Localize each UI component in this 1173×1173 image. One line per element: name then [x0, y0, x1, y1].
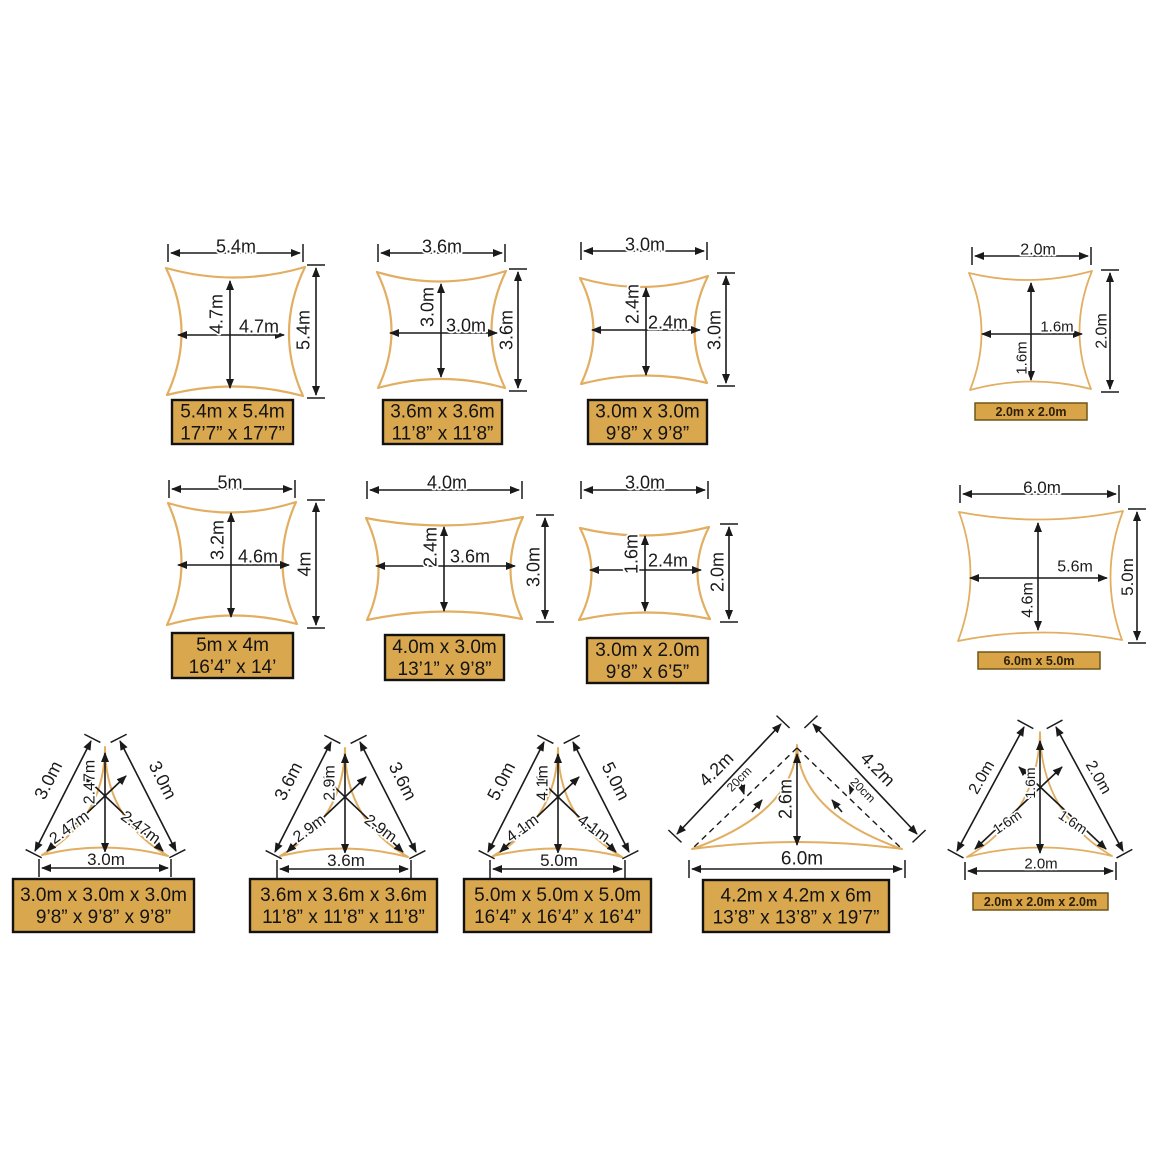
diagram-canvas: 5.4m5.4m4.7m4.7m5.4m x 5.4m17’7” x 17’7”… [0, 0, 1173, 1173]
size-label-text: 17’7” x 17’7” [180, 424, 285, 445]
dimension-line [832, 800, 842, 812]
dimension-label: 4.7m [239, 316, 279, 336]
dimension-label: 5.4m [216, 236, 256, 256]
dimension-label: 2.4m [420, 527, 440, 567]
figure-triangle-4.2x4.2x6.0: 4.2m4.2m20cm20cm6.0m2.6m4.2m x 4.2m x 6m… [668, 716, 925, 932]
dimension-label: 2.9m [322, 765, 339, 801]
figure-triangle-3.6x3.6x3.6: 3.6m3.6m3.6m2.9m2.9m2.9m3.6m x 3.6m x 3.… [250, 735, 437, 932]
figure-square-5.4x5.4: 5.4m5.4m4.7m4.7m5.4m x 5.4m17’7” x 17’7” [166, 236, 325, 444]
dimension-label: 5.4m [293, 310, 313, 350]
dimension-tick [266, 851, 282, 859]
dimension-label: 3.0m [704, 310, 724, 350]
dimension-label: 1.6m [621, 534, 641, 574]
dimension-label: 4m [294, 551, 314, 576]
size-label-text: 16’4” x 16’4” x 16’4” [474, 907, 641, 928]
dimension-label: 2.0m [966, 758, 999, 797]
dimension-label: 2.0m [1082, 758, 1115, 797]
size-label-text: 4.0m x 3.0m [392, 637, 497, 658]
dimension-tick [169, 850, 185, 858]
dimension-label: 3.6m [327, 851, 365, 870]
figure-square-2.0x2.0: 2.0m2.0m1.6m1.6m2.0m x 2.0m [969, 242, 1119, 420]
figure-triangle-2.0x2.0x2.0: 2.0m2.0m2.0m1.6m1.6m1.6m2.0m x 2.0m x 2.… [948, 720, 1133, 910]
size-label-text: 9’8” x 6’5” [606, 662, 689, 683]
size-label-text: 3.0m x 3.0m x 3.0m [20, 885, 187, 906]
dimension-tick [351, 735, 367, 743]
figure-square-3.0x3.0: 3.0m3.0m2.4m2.4m3.0m x 3.0m9’8” x 9’8” [580, 234, 735, 444]
dimension-tick [622, 851, 638, 859]
dimension-tick [948, 849, 964, 858]
dimension-tick [564, 735, 580, 743]
dimension-label: 2.0m [707, 552, 727, 592]
dimension-label: 2.0m [1020, 242, 1056, 259]
size-label-text: 4.2m x 4.2m x 6m [721, 886, 872, 907]
dimension-label: 5m [217, 472, 242, 492]
sail-outline [166, 267, 305, 396]
size-label-text: 16’4” x 14’ [189, 657, 277, 678]
figure-rect-5x4: 5m4m3.2m4.6m5m x 4m16’4” x 14’ [167, 472, 325, 678]
dimension-label: 4.0m [427, 472, 467, 492]
dimension-tick [1117, 849, 1133, 858]
size-label-text: 3.6m x 3.6m [390, 402, 495, 423]
dimension-label: 4.6m [238, 546, 278, 566]
dimension-label: 2.0m [1024, 855, 1057, 872]
size-label-text: 3.0m x 3.0m [595, 402, 700, 423]
shade-sail-dimension-diagram: 5.4m5.4m4.7m4.7m5.4m x 5.4m17’7” x 17’7”… [0, 0, 1173, 1173]
size-label-text: 11’8” x 11’8” x 11’8” [262, 907, 425, 928]
dimension-line [752, 800, 762, 812]
dimension-label: 5.0m [1118, 558, 1137, 596]
size-label-text: 5.0m x 5.0m x 5.0m [474, 885, 641, 906]
dimension-label: 4.7m [206, 294, 226, 334]
dimension-tick [1047, 720, 1063, 729]
dimension-label: 4.1m [535, 765, 552, 801]
dimension-label: 3.0m [417, 287, 437, 327]
figure-rect-4.0x3.0: 4.0m3.0m2.4m3.6m4.0m x 3.0m13’1” x 9’8” [366, 472, 554, 680]
dimension-label: 1.6m [1013, 341, 1030, 374]
size-label-text: 5.4m x 5.4m [180, 402, 285, 423]
dimension-label: 3.6m [450, 546, 490, 566]
dimension-label: 2.4m [648, 550, 688, 570]
dimension-label: 1.6m [1040, 318, 1073, 335]
dimension-label: 2.4m [648, 312, 688, 332]
size-label-text: 6.0m x 5.0m [1004, 654, 1075, 668]
dimension-tick [26, 850, 42, 858]
dimension-tick [111, 734, 127, 742]
size-label-text: 11’8” x 11’8” [392, 424, 494, 445]
dimension-label: 2.0m [1094, 313, 1111, 349]
dimension-label: 3.0m [30, 758, 66, 803]
dimension-label: 3.0m [87, 850, 125, 869]
dimension-label: 5.0m [483, 759, 519, 804]
size-label-text: 13’8” x 13’8” x 19’7” [713, 908, 880, 929]
dimension-tick [479, 851, 495, 859]
size-label-text: 9’8” x 9’8” [606, 424, 689, 445]
dimension-label: 6.0m [1023, 478, 1061, 497]
dimension-label: 3.0m [446, 315, 486, 335]
figure-triangle-3.0x3.0x3.0: 3.0m3.0m3.0m2.47m2.47m2.47m3.0m x 3.0m x… [13, 734, 194, 932]
dimension-tick [1018, 720, 1034, 729]
dimension-label: 3.2m [207, 520, 227, 560]
dimension-tick [537, 735, 553, 743]
sail-outline [958, 511, 1123, 641]
size-label-text: 2.0m x 2.0m [996, 405, 1067, 419]
dimension-label: 3.6m [496, 310, 516, 350]
dimension-label: 3.6m [270, 759, 306, 804]
size-label-text: 13’1” x 9’8” [398, 659, 492, 680]
dimension-label: 5.6m [1057, 559, 1093, 576]
figure-triangle-5.0x5.0x5.0: 5.0m5.0m5.0m4.1m4.1m4.1m5.0m x 5.0m x 5.… [464, 735, 651, 932]
dimension-label: 5.0m [540, 851, 578, 870]
dimension-label: 3.6m [385, 759, 421, 804]
dimension-label: 3.6m [422, 236, 462, 256]
dimension-label: 2.47m [82, 760, 99, 804]
dimension-label: 2.4m [622, 284, 642, 324]
figure-rect-6.0x5.0: 6.0m5.0m4.6m5.6m6.0m x 5.0m [958, 478, 1146, 669]
dimension-label: 4.6m [1020, 582, 1037, 618]
size-label-text: 3.6m x 3.6m x 3.6m [260, 885, 427, 906]
dimension-label: 3.0m [145, 758, 181, 803]
dimension-label: 2.6m [775, 779, 795, 819]
figure-square-3.6x3.6: 3.6m3.6m3.0m3.0m3.6m x 3.6m11’8” x 11’8” [377, 236, 527, 444]
dimension-label: 3.0m [625, 234, 665, 254]
dimension-tick [324, 735, 340, 743]
dimension-label: 6.0m [781, 849, 823, 870]
size-label-text: 2.0m x 2.0m x 2.0m [984, 895, 1097, 909]
dimension-label: 1.6m [1022, 767, 1038, 798]
size-label-text: 3.0m x 2.0m [595, 640, 700, 661]
size-label-text: 5m x 4m [196, 635, 269, 656]
size-label-text: 9’8” x 9’8” x 9’8” [36, 907, 171, 928]
dimension-label: 3.0m [625, 472, 665, 492]
figure-rect-3.0x2.0: 3.0m2.0m1.6m2.4m3.0m x 2.0m9’8” x 6’5” [579, 472, 738, 683]
dimension-tick [409, 851, 425, 859]
dimension-label: 3.0m [523, 547, 543, 587]
dimension-label: 5.0m [598, 759, 634, 804]
dimension-tick [84, 734, 100, 742]
